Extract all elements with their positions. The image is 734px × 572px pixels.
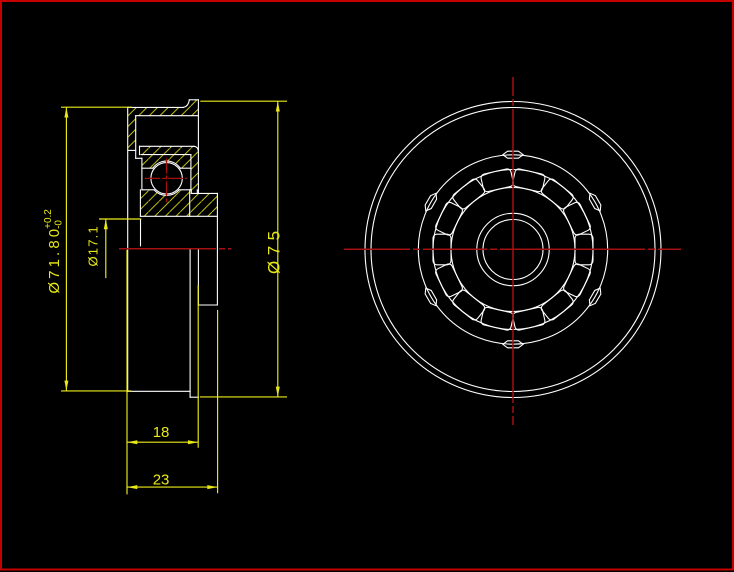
svg-text:18: 18 [153, 424, 170, 441]
svg-text:Ø75: Ø75 [265, 225, 284, 274]
svg-text:Ø71.80: Ø71.80 [46, 226, 63, 294]
svg-text:Ø17.1: Ø17.1 [86, 225, 101, 266]
svg-text:-0: -0 [54, 220, 65, 229]
svg-text:+0.2: +0.2 [43, 209, 54, 229]
svg-text:23: 23 [153, 472, 170, 489]
